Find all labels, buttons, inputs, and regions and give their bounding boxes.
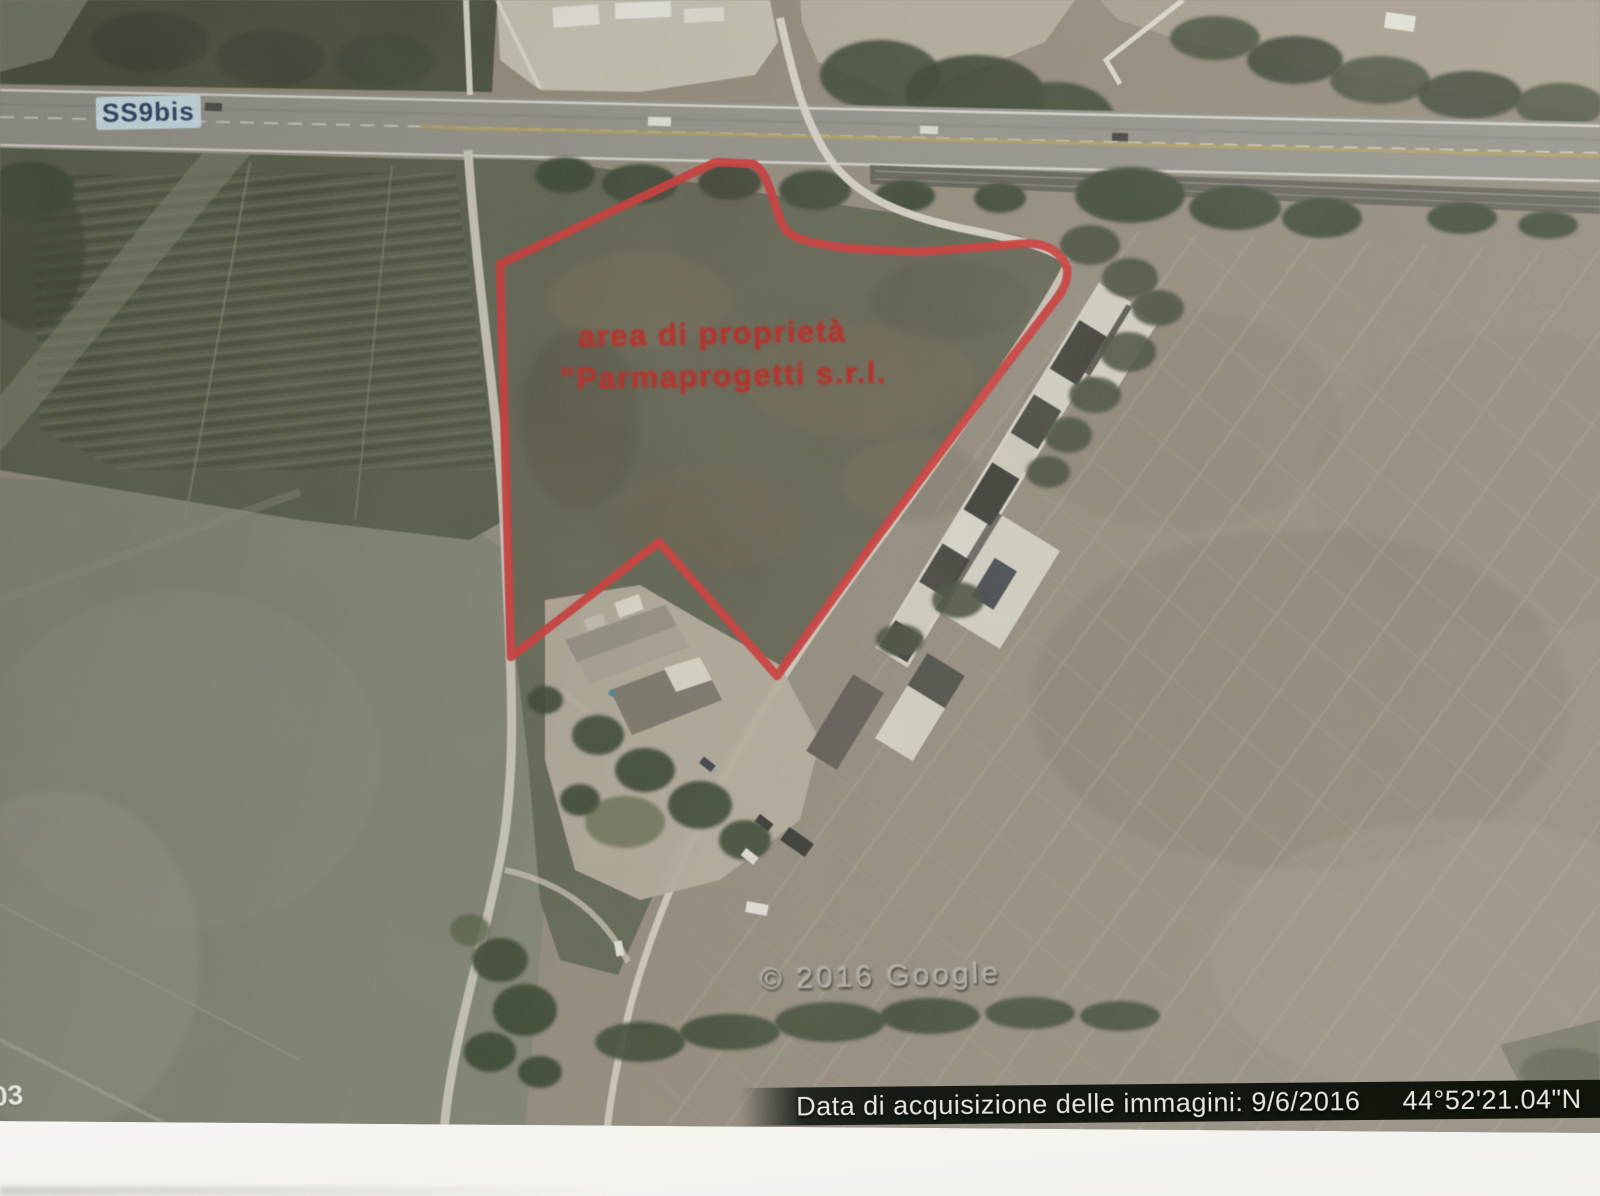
property-annotation-line2: "Parmaprogetti s.r.l. [560, 355, 888, 398]
corner-text-fragment: 03 [0, 1079, 24, 1113]
acquisition-date-text: Data di acquisizione delle immagini: 9/6… [796, 1086, 1361, 1122]
google-watermark: © 2016 Google [760, 957, 1002, 998]
property-annotation-line1: area di proprietà [578, 313, 847, 355]
satellite-photo: SS9bis area di proprietà "Parmaprogetti … [0, 0, 1600, 1140]
scanned-page: SS9bis area di proprietà "Parmaprogetti … [0, 0, 1600, 1196]
scan-edge-smudge [0, 1186, 720, 1196]
road-label: SS9bis [96, 95, 201, 130]
latitude-text: 44°52'21.04"N [1402, 1083, 1581, 1116]
